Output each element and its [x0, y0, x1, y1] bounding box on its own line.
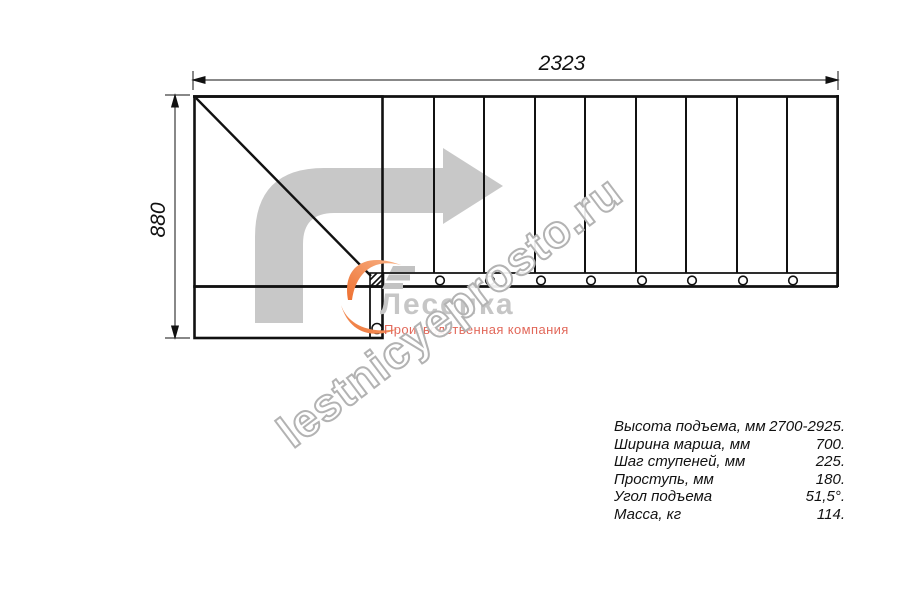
logo-wordmark: Лесенка — [380, 288, 515, 322]
logo-subtitle: Производственная компания — [384, 322, 569, 337]
spec-row: Угол подъема 51,5°. — [614, 488, 845, 506]
spec-value: 700. — [816, 436, 845, 454]
spec-table: Высота подъема, мм 2700-2925. Ширина мар… — [614, 418, 845, 523]
spec-value: 114. — [817, 506, 845, 524]
dim-arrow-right-icon — [826, 77, 838, 84]
spec-row: Проступь, мм 180. — [614, 471, 845, 489]
dim-arrow-up-icon — [172, 95, 179, 107]
spec-label: Высота подъема, мм — [614, 418, 766, 436]
spec-value: 2700-2925. — [769, 418, 845, 436]
spec-value: 180. — [816, 471, 845, 489]
bolt-circle — [436, 276, 445, 285]
dimension-width-label: 2323 — [462, 52, 662, 76]
bolt-circle — [789, 276, 798, 285]
dim-arrow-down-icon — [172, 326, 179, 338]
spec-label: Ширина марша, мм — [614, 436, 750, 454]
spec-label: Проступь, мм — [614, 471, 714, 489]
spec-label: Шаг ступеней, мм — [614, 453, 745, 471]
bolt-circle — [688, 276, 697, 285]
bolt-circle — [587, 276, 596, 285]
spec-label: Угол подъема — [614, 488, 712, 506]
stair-plan-page: 2323 880 Лесенка Производственная компан… — [0, 0, 900, 600]
bolt-circle — [537, 276, 546, 285]
bolt-circle — [638, 276, 647, 285]
spec-value: 51,5°. — [806, 488, 845, 506]
bolt-circle — [486, 276, 495, 285]
spec-row: Ширина марша, мм 700. — [614, 436, 845, 454]
dim-arrow-left-icon — [193, 77, 205, 84]
spec-row: Шаг ступеней, мм 225. — [614, 453, 845, 471]
spec-value: 225. — [816, 453, 845, 471]
dimension-height-label: 880 — [147, 190, 169, 250]
bolt-circle — [739, 276, 748, 285]
spec-row: Высота подъема, мм 2700-2925. — [614, 418, 845, 436]
spec-row: Масса, кг 114. — [614, 506, 845, 524]
spec-label: Масса, кг — [614, 506, 681, 524]
